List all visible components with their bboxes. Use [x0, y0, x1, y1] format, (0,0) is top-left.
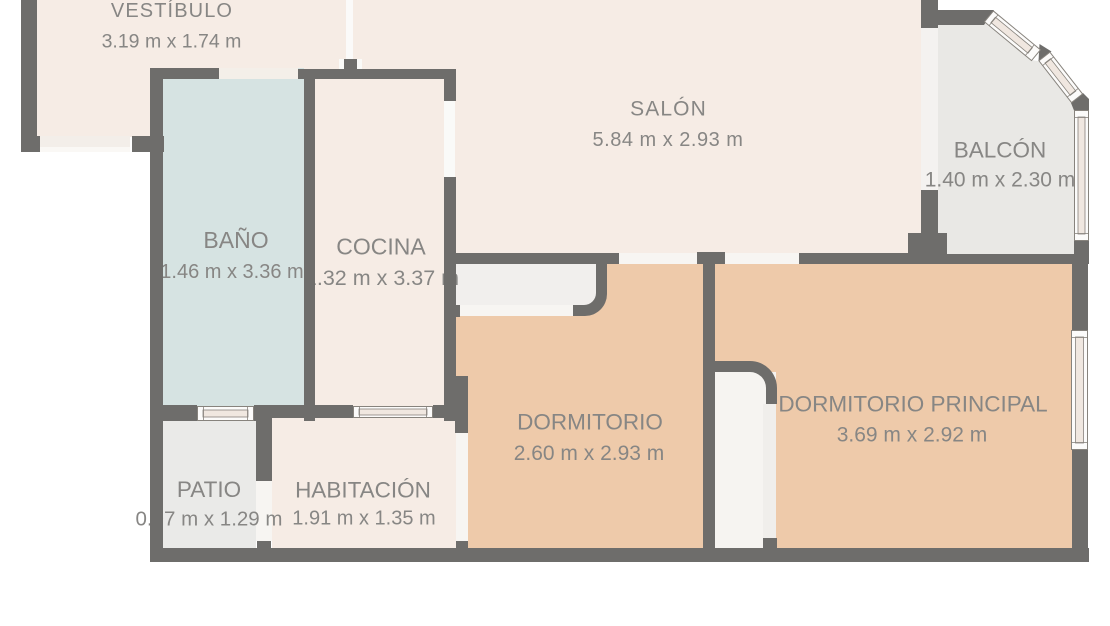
svg-text:3.19 m x 1.74 m: 3.19 m x 1.74 m — [102, 31, 242, 53]
svg-text:VESTÍBULO: VESTÍBULO — [111, 0, 233, 22]
svg-text:1.32 m x 3.37 m: 1.32 m x 3.37 m — [305, 266, 459, 290]
svg-text:1.46 m x 3.36 m: 1.46 m x 3.36 m — [160, 261, 303, 283]
svg-text:BALCÓN: BALCÓN — [954, 138, 1047, 163]
svg-text:PATIO: PATIO — [177, 477, 241, 502]
svg-text:DORMITORIO: DORMITORIO — [517, 410, 663, 435]
svg-text:DORMITORIO PRINCIPAL: DORMITORIO PRINCIPAL — [778, 392, 1047, 417]
svg-text:5.84 m x 2.93 m: 5.84 m x 2.93 m — [593, 129, 744, 151]
svg-text:1.40 m x 2.30 m: 1.40 m x 2.30 m — [925, 169, 1076, 192]
svg-text:3.69 m x 2.92 m: 3.69 m x 2.92 m — [837, 424, 988, 447]
svg-text:BAÑO: BAÑO — [203, 227, 268, 253]
svg-text:COCINA: COCINA — [336, 234, 426, 260]
svg-text:1.91 m x 1.35 m: 1.91 m x 1.35 m — [292, 508, 435, 530]
svg-text:SALÓN: SALÓN — [630, 98, 707, 121]
svg-text:2.60 m x 2.93 m: 2.60 m x 2.93 m — [514, 442, 665, 465]
svg-text:HABITACIÓN: HABITACIÓN — [295, 478, 431, 503]
